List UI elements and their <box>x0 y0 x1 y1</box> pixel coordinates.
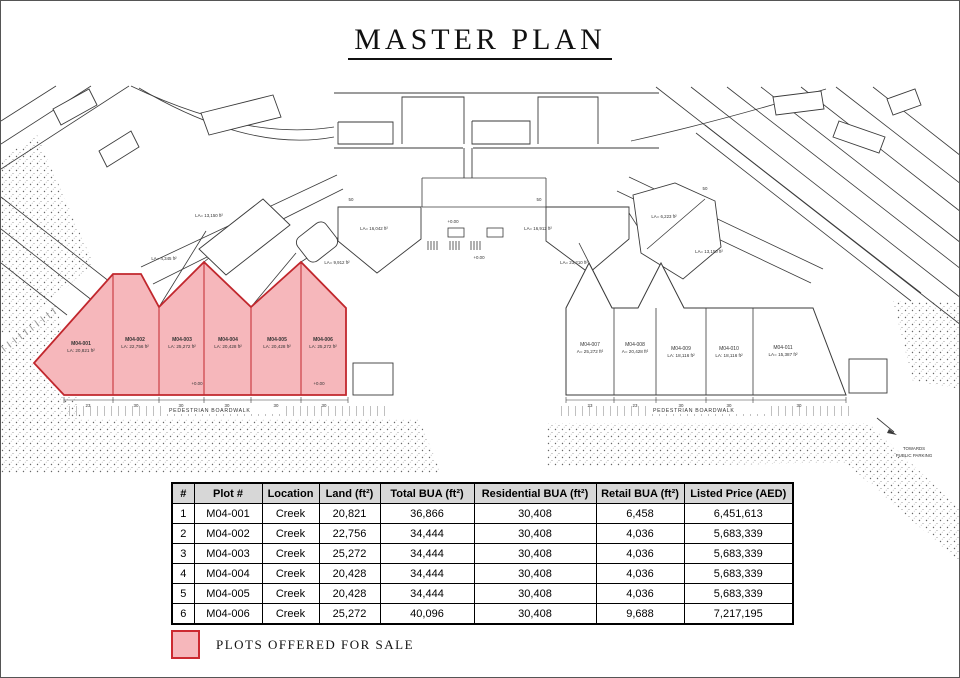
table-cell: 5 <box>172 584 194 604</box>
area-label: LA= 9,912 ft² <box>324 260 350 265</box>
header-total-bua: Total BUA (ft²) <box>380 483 474 504</box>
table-cell: 30,408 <box>474 564 596 584</box>
table-cell: Creek <box>262 504 319 524</box>
table-row: 2 M04-002 Creek 22,756 34,444 30,408 4,0… <box>172 524 793 544</box>
plot-label: M04-007 <box>580 342 600 348</box>
dim-label: 30 <box>274 403 279 408</box>
master-plan-sheet: MASTER PLAN <box>0 0 960 678</box>
dim-label: 30 <box>797 403 802 408</box>
table-header-row: # Plot # Location Land (ft²) Total BUA (… <box>172 483 793 504</box>
plot-area-label: LA: 18,116 ft² <box>715 353 743 358</box>
table-cell: 25,272 <box>319 604 380 625</box>
table-cell: M04-005 <box>194 584 262 604</box>
table-cell: 3 <box>172 544 194 564</box>
area-label: LA= 16,912 ft² <box>524 226 552 231</box>
table-cell: 20,428 <box>319 584 380 604</box>
plot-area-label: LA: 25,272 ft² <box>168 344 196 349</box>
table-cell: 6,451,613 <box>684 504 793 524</box>
plot-area-label: LA= 15,387 ft² <box>769 352 798 357</box>
table-cell: 6 <box>172 604 194 625</box>
central-plaza <box>422 178 546 250</box>
area-label: LA= 6,223 ft² <box>651 214 677 219</box>
dim-label: 23 <box>633 403 638 408</box>
dim-label: 30 <box>727 403 732 408</box>
legend: PLOTS OFFERED FOR SALE <box>171 630 414 659</box>
header-residential-bua: Residential BUA (ft²) <box>474 483 596 504</box>
table-cell: 4,036 <box>596 524 684 544</box>
boardwalk-label-right: PEDESTRIAN BOARDWALK <box>653 408 735 414</box>
plot-label: M04-002 <box>125 337 145 343</box>
table-cell: 7,217,195 <box>684 604 793 625</box>
for-sale-swatch-icon <box>171 630 200 659</box>
table-cell: 5,683,339 <box>684 564 793 584</box>
dim-label: 50 <box>703 186 708 191</box>
plot-area-label: A= 25,272 ft² <box>577 349 604 354</box>
table-cell: M04-006 <box>194 604 262 625</box>
plot-area-label: LA: 18,116 ft² <box>667 353 695 358</box>
area-label: LA= 13,150 ft² <box>695 249 723 254</box>
dim-label: 30 <box>322 403 327 408</box>
plot-label: M04-001 <box>71 341 91 347</box>
table-cell: 34,444 <box>380 584 474 604</box>
table-cell: 22,756 <box>319 524 380 544</box>
plot-area-label: LA: 20,428 ft² <box>263 344 291 349</box>
table-row: 5 M04-005 Creek 20,428 34,444 30,408 4,0… <box>172 584 793 604</box>
legend-label: PLOTS OFFERED FOR SALE <box>216 637 414 653</box>
plot-area-label: LA: 20,821 ft² <box>67 348 95 353</box>
page-title-text: MASTER PLAN <box>348 23 612 60</box>
plot-area-label: LA: 25,272 ft² <box>309 344 337 349</box>
pink-plots-for-sale: M04-001 LA: 20,821 ft² M04-002 LA: 22,75… <box>34 262 346 395</box>
dim-label: 50 <box>537 197 542 202</box>
plot-label: M04-003 <box>172 337 192 343</box>
table-cell: 30,408 <box>474 524 596 544</box>
table-cell: 30,408 <box>474 504 596 524</box>
table-cell: Creek <box>262 604 319 625</box>
table-cell: 2 <box>172 524 194 544</box>
table-row: 3 M04-003 Creek 25,272 34,444 30,408 4,0… <box>172 544 793 564</box>
parking-label-line2: PUBLIC PARKING <box>896 453 933 458</box>
area-label: LA= 13,150 ft² <box>195 213 223 218</box>
table-cell: 25,272 <box>319 544 380 564</box>
table-cell: Creek <box>262 524 319 544</box>
header-index: # <box>172 483 194 504</box>
table-cell: M04-003 <box>194 544 262 564</box>
parking-label-line1: TOWARDS <box>903 446 925 451</box>
table-cell: 5,683,339 <box>684 544 793 564</box>
table-cell: 4 <box>172 564 194 584</box>
pink-plots-outline <box>34 262 346 395</box>
page-title: MASTER PLAN <box>1 23 959 60</box>
table-cell: Creek <box>262 584 319 604</box>
table-row: 4 M04-004 Creek 20,428 34,444 30,408 4,0… <box>172 564 793 584</box>
table-cell: 4,036 <box>596 544 684 564</box>
table-cell: M04-002 <box>194 524 262 544</box>
spot-level: +0.00 <box>191 381 203 386</box>
header-listed-price: Listed Price (AED) <box>684 483 793 504</box>
table-cell: 5,683,339 <box>684 524 793 544</box>
right-white-plots: M04-007 A= 25,272 ft² M04-008 A= 20,428 … <box>566 263 846 395</box>
plot-data-table: # Plot # Location Land (ft²) Total BUA (… <box>171 482 794 625</box>
table-cell: 5,683,339 <box>684 584 793 604</box>
table-cell: M04-004 <box>194 564 262 584</box>
plot-label: M04-005 <box>267 337 287 343</box>
buildings-top-left <box>53 89 281 167</box>
table-cell: 9,688 <box>596 604 684 625</box>
table-cell: 34,444 <box>380 564 474 584</box>
table-cell: Creek <box>262 564 319 584</box>
table-cell: 20,428 <box>319 564 380 584</box>
plot-area-label: LA: 22,756 ft² <box>121 344 149 349</box>
dim-label: 30 <box>179 403 184 408</box>
table-cell: 36,866 <box>380 504 474 524</box>
table-cell: 30,408 <box>474 584 596 604</box>
area-label: LA= 4,345 ft² <box>151 256 177 261</box>
table-cell: 6,458 <box>596 504 684 524</box>
spot-level: +0.00 <box>447 219 459 224</box>
table-cell: M04-001 <box>194 504 262 524</box>
plot-label: M04-009 <box>671 346 691 352</box>
area-label: LA= 16,042 ft² <box>360 226 388 231</box>
table-header: # Plot # Location Land (ft²) Total BUA (… <box>172 483 793 504</box>
plot-label: M04-011 <box>773 345 793 351</box>
buildings-top-right <box>773 89 921 153</box>
table-cell: Creek <box>262 544 319 564</box>
table-cell: 34,444 <box>380 544 474 564</box>
header-plot: Plot # <box>194 483 262 504</box>
spot-level: +0.00 <box>473 255 485 260</box>
dim-label: 50 <box>349 197 354 202</box>
dim-label: 23 <box>588 403 593 408</box>
table-cell: 20,821 <box>319 504 380 524</box>
table-cell: 1 <box>172 504 194 524</box>
plot-label: M04-004 <box>218 337 238 343</box>
dim-label: 30 <box>134 403 139 408</box>
table-cell: 30,408 <box>474 604 596 625</box>
table-cell: 40,096 <box>380 604 474 625</box>
boardwalks: PEDESTRIAN BOARDWALK PEDESTRIAN BOARDWAL… <box>69 405 853 414</box>
plot-label: M04-008 <box>625 342 645 348</box>
boardwalk-label-left: PEDESTRIAN BOARDWALK <box>169 408 251 414</box>
spot-level: +0.00 <box>313 381 325 386</box>
table-cell: 4,036 <box>596 584 684 604</box>
table-cell: 4,036 <box>596 564 684 584</box>
plot-area-label: A= 20,428 ft² <box>622 349 649 354</box>
header-location: Location <box>262 483 319 504</box>
area-label: LA= 23,210 ft² <box>560 260 588 265</box>
dim-label: 30 <box>225 403 230 408</box>
road-top-strip <box>334 93 659 178</box>
plot-label: M04-006 <box>313 337 333 343</box>
dim-label: 23 <box>86 403 91 408</box>
plot-area-label: LA: 20,428 ft² <box>214 344 242 349</box>
table-cell: 30,408 <box>474 544 596 564</box>
header-land: Land (ft²) <box>319 483 380 504</box>
table-row: 6 M04-006 Creek 25,272 40,096 30,408 9,6… <box>172 604 793 625</box>
table-row: 1 M04-001 Creek 20,821 36,866 30,408 6,4… <box>172 504 793 524</box>
table-cell: 34,444 <box>380 524 474 544</box>
plot-label: M04-010 <box>719 346 739 352</box>
dim-label: 30 <box>679 403 684 408</box>
header-retail-bua: Retail BUA (ft²) <box>596 483 684 504</box>
